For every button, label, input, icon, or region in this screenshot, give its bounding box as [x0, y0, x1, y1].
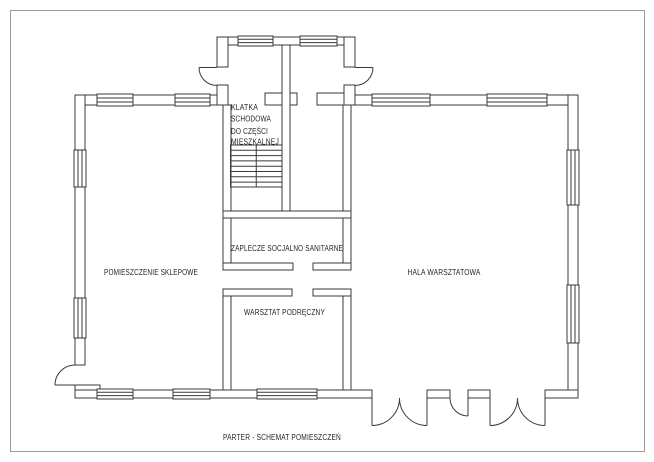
- wall-porch-left-upper: [217, 37, 228, 67]
- door-porch-left: [199, 68, 217, 86]
- window-bottom-3: [257, 389, 317, 399]
- wall-auxworkshop-top-left: [223, 289, 292, 296]
- drawing-caption: PARTER - SCHEMAT POMIESZCZEŃ: [223, 433, 341, 442]
- wall-bottom-piece2: [427, 390, 450, 398]
- door-hall-double-1: [372, 398, 427, 426]
- floorplan-sheet: POMIESZCZENIE SKLEPOWE HALA WARSZTATOWA …: [0, 0, 654, 462]
- window-porch-1: [238, 36, 273, 46]
- window-top-4: [487, 94, 547, 106]
- label-staircase-line3: DO CZĘŚCI: [231, 127, 268, 136]
- wall-bottom-piece4: [545, 390, 578, 398]
- window-top-1: [97, 94, 133, 106]
- door-shop-entrance: [55, 365, 75, 385]
- label-staircase-line4: MIESZKALNEJ: [231, 138, 279, 147]
- label-shop: POMIESZCZENIE SKLEPOWE: [104, 268, 198, 277]
- door-porch-right: [355, 68, 373, 86]
- wall-porch-right-lower: [344, 85, 355, 105]
- window-left-2: [74, 298, 86, 338]
- wall-porch-right-upper: [344, 37, 355, 67]
- wall-right: [568, 95, 578, 398]
- label-hall: HALA WARSZTATOWA: [408, 268, 481, 277]
- wall-below-stairs: [223, 211, 351, 218]
- window-bottom-1: [97, 389, 133, 399]
- wall-social-bottom-left: [223, 263, 293, 270]
- window-top-2: [175, 94, 210, 106]
- wall-stair-divider: [282, 45, 290, 212]
- window-right-2: [567, 285, 579, 343]
- wall-porch-left-lower: [217, 85, 228, 105]
- stairs: [231, 145, 283, 187]
- door-hall-single: [450, 398, 468, 416]
- label-staircase-line2: SCHODOWA: [231, 115, 271, 124]
- wall-auxworkshop-top-right: [313, 289, 351, 296]
- window-porch-2: [300, 36, 337, 46]
- wall-midcol-left-lower: [223, 289, 231, 390]
- wall-midcol-right-lower: [343, 289, 351, 390]
- window-right-1: [567, 150, 579, 205]
- sheet-border: [11, 11, 645, 452]
- wall-social-bottom-right: [313, 263, 351, 270]
- label-staircase-line1: KLATKA: [231, 103, 258, 112]
- wall-midcol-right-upper: [343, 105, 351, 270]
- floor-plan-drawing: POMIESZCZENIE SKLEPOWE HALA WARSZTATOWA …: [0, 0, 654, 462]
- wall-midcol-left-upper: [223, 105, 231, 270]
- window-left-1: [74, 150, 86, 187]
- label-aux-workshop: WARSZTAT PODRĘCZNY: [244, 308, 325, 317]
- window-top-3: [372, 94, 430, 106]
- wall-bottom-piece3: [468, 390, 490, 398]
- label-social: ZAPLECZE SOCJALNO SANITARNE: [231, 244, 343, 253]
- window-bottom-2: [173, 389, 210, 399]
- wall-main-mid-left: [265, 93, 297, 105]
- door-hall-double-2: [490, 398, 545, 426]
